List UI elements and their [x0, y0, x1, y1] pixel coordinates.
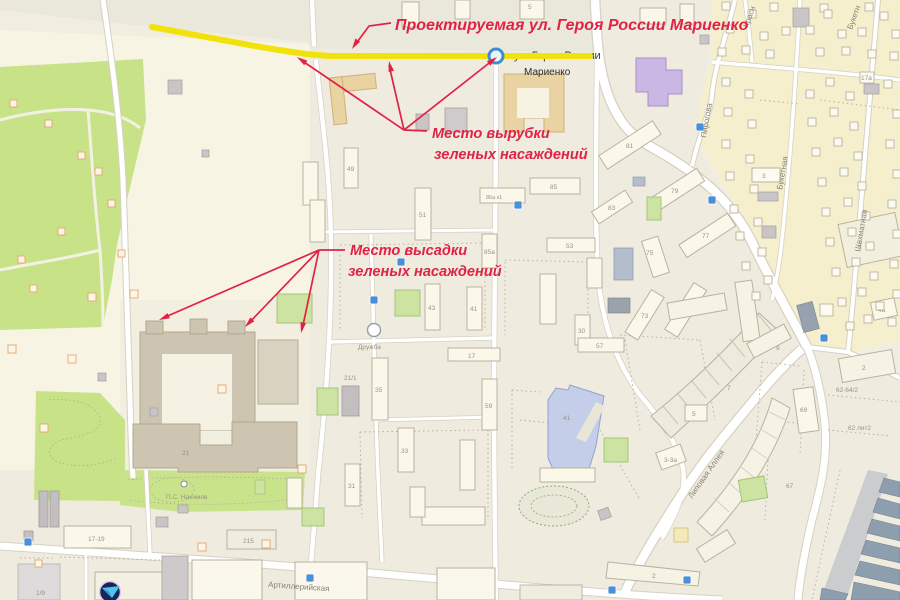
- svg-text:69: 69: [800, 407, 808, 414]
- svg-text:17а: 17а: [861, 75, 872, 82]
- svg-text:83: 83: [608, 205, 616, 212]
- svg-text:17: 17: [468, 353, 476, 360]
- svg-text:17-19: 17-19: [88, 536, 105, 543]
- svg-text:73: 73: [641, 313, 649, 320]
- svg-text:86а к1: 86а к1: [486, 195, 502, 201]
- svg-text:3-3а: 3-3а: [664, 457, 677, 464]
- svg-text:51: 51: [419, 212, 427, 219]
- svg-text:Мариенко: Мариенко: [524, 67, 571, 78]
- svg-text:57: 57: [596, 343, 604, 350]
- svg-text:33: 33: [401, 448, 409, 455]
- svg-text:2: 2: [652, 573, 656, 580]
- svg-text:Место вырубки: Место вырубки: [432, 126, 550, 142]
- svg-text:53: 53: [566, 243, 574, 250]
- svg-text:30: 30: [578, 328, 586, 335]
- svg-text:31: 31: [348, 483, 356, 490]
- svg-text:зеленых насаждений: зеленых насаждений: [348, 264, 502, 280]
- svg-text:35: 35: [375, 387, 383, 394]
- svg-text:81: 81: [626, 143, 634, 150]
- svg-text:зеленых насаждений: зеленых насаждений: [434, 147, 588, 163]
- svg-text:Место высадки: Место высадки: [350, 243, 467, 259]
- svg-text:1/9: 1/9: [36, 590, 45, 597]
- svg-text:75: 75: [646, 250, 654, 257]
- svg-text:П.С. Нахимов: П.С. Нахимов: [166, 494, 208, 501]
- svg-text:85а: 85а: [484, 249, 495, 256]
- svg-text:Проектируемая ул. Героя России: Проектируемая ул. Героя России Мариенко: [395, 17, 749, 34]
- svg-text:59: 59: [485, 403, 493, 410]
- svg-text:79: 79: [671, 188, 679, 195]
- svg-text:2: 2: [862, 365, 866, 372]
- svg-text:7: 7: [727, 385, 731, 392]
- svg-text:41: 41: [563, 415, 571, 422]
- svg-text:85: 85: [550, 184, 558, 191]
- svg-text:43: 43: [428, 305, 436, 312]
- svg-text:Дружба: Дружба: [358, 343, 381, 351]
- svg-text:3: 3: [762, 173, 766, 180]
- svg-text:49: 49: [347, 166, 355, 173]
- svg-text:21: 21: [182, 450, 190, 457]
- svg-text:21/1: 21/1: [344, 375, 357, 382]
- svg-text:41: 41: [470, 306, 478, 313]
- svg-text:77: 77: [702, 233, 710, 240]
- svg-text:5: 5: [692, 411, 696, 418]
- svg-text:67: 67: [786, 483, 794, 490]
- svg-text:62 лит2: 62 лит2: [848, 425, 871, 432]
- svg-text:62-64/2: 62-64/2: [836, 387, 858, 394]
- svg-text:215: 215: [243, 538, 254, 545]
- svg-text:5: 5: [528, 4, 532, 11]
